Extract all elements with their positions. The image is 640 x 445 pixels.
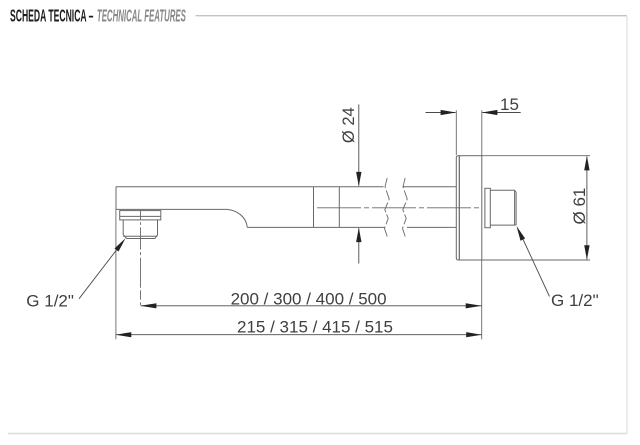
svg-text:15: 15 bbox=[500, 95, 519, 114]
svg-text:200 / 300 / 400 / 500: 200 / 300 / 400 / 500 bbox=[231, 290, 387, 309]
svg-text:G 1/2": G 1/2" bbox=[551, 291, 599, 310]
svg-text:SCHEDA TECNICA –: SCHEDA TECNICA – bbox=[10, 5, 94, 25]
svg-text:Ø 61: Ø 61 bbox=[570, 188, 589, 225]
svg-text:TECHNICAL FEATURES: TECHNICAL FEATURES bbox=[97, 6, 186, 25]
svg-text:Ø 24: Ø 24 bbox=[340, 107, 358, 143]
svg-text:215 / 315 / 415 / 515: 215 / 315 / 415 / 515 bbox=[237, 318, 393, 337]
svg-text:G 1/2": G 1/2" bbox=[26, 291, 74, 310]
